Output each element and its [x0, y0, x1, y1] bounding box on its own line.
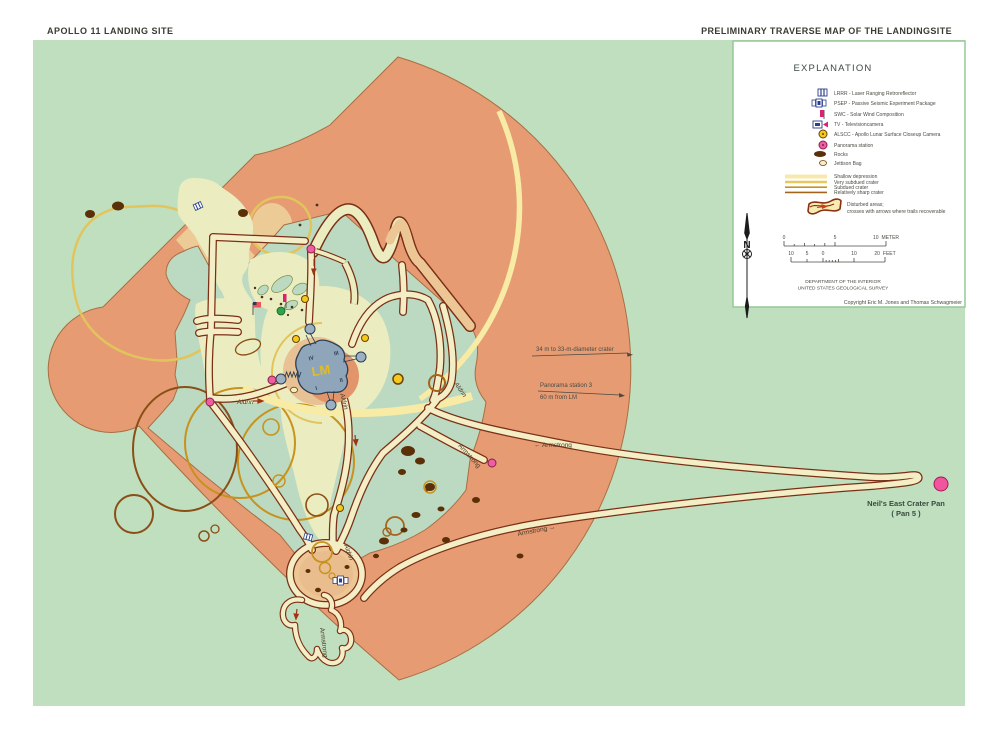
- svg-text:5: 5: [834, 235, 837, 241]
- svg-text:Panorama station 3: Panorama station 3: [540, 383, 593, 389]
- svg-text:10: 10: [851, 251, 857, 257]
- svg-text:APOLLO 11 LANDING SITE: APOLLO 11 LANDING SITE: [47, 26, 174, 36]
- svg-text:Rocks: Rocks: [834, 152, 848, 158]
- svg-text:PSEP - Passive Seismic Experim: PSEP - Passive Seismic Experiment Packag…: [834, 101, 936, 107]
- svg-text:LRRR - Laser Ranging Retrorefl: LRRR - Laser Ranging Retroreflector: [834, 91, 917, 97]
- svg-text:Relatively sharp crater: Relatively sharp crater: [834, 190, 884, 196]
- svg-text:Jettison Bag: Jettison Bag: [834, 161, 862, 167]
- svg-text:Aldrin: Aldrin: [236, 399, 254, 406]
- svg-text:20FEET: 20FEET: [874, 251, 895, 257]
- svg-text:10METER: 10METER: [873, 235, 899, 241]
- svg-text:crosses with arrows where trai: crosses with arrows where trails recover…: [847, 209, 946, 215]
- svg-text:SWC - Solar Wind Composition: SWC - Solar Wind Composition: [834, 112, 904, 118]
- svg-text:DEPARTMENT OF THE INTERIOR: DEPARTMENT OF THE INTERIOR: [805, 279, 881, 285]
- svg-text:60 m from LM: 60 m from LM: [540, 395, 577, 401]
- svg-text:0: 0: [783, 235, 786, 241]
- svg-text:Disturbed areas;: Disturbed areas;: [847, 202, 884, 208]
- svg-text:LM: LM: [311, 362, 332, 379]
- svg-text:( Pan 5 ): ( Pan 5 ): [891, 509, 921, 518]
- svg-text:TV - Televisioncamera: TV - Televisioncamera: [834, 122, 884, 128]
- svg-text:ALSCC - Apollo Lunar Surface C: ALSCC - Apollo Lunar Surface Closeup Cam…: [834, 132, 941, 138]
- svg-text:UNITED STATES GEOLOGICAL SURVE: UNITED STATES GEOLOGICAL SURVEY: [798, 286, 890, 292]
- svg-text:EXPLANATION: EXPLANATION: [793, 63, 872, 74]
- svg-text:34 m to 33-m-diameter crater: 34 m to 33-m-diameter crater: [536, 347, 614, 353]
- svg-text:← Armstrong: ← Armstrong: [534, 442, 572, 449]
- svg-text:10: 10: [788, 251, 794, 257]
- svg-text:0: 0: [822, 251, 825, 257]
- svg-text:PRELIMINARY TRAVERSE MAP OF TH: PRELIMINARY TRAVERSE MAP OF THE LANDINGS…: [701, 26, 952, 36]
- svg-text:Panorama station: Panorama station: [834, 143, 873, 149]
- svg-text:5: 5: [806, 251, 809, 257]
- svg-text:Copyright Eric M. Jones and Th: Copyright Eric M. Jones and Thomas Schwa…: [844, 300, 962, 306]
- svg-text:Neil's East Crater Pan: Neil's East Crater Pan: [867, 499, 945, 508]
